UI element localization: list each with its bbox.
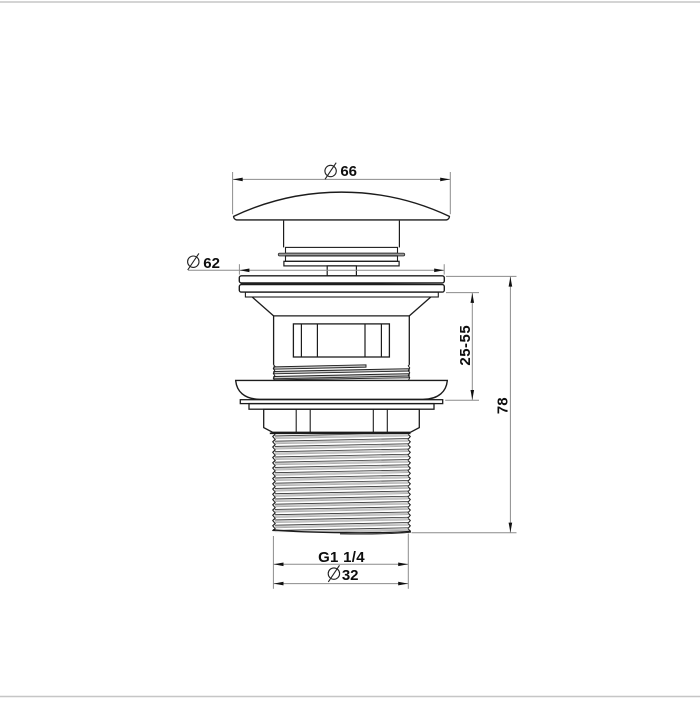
svg-text:25-55: 25-55 [457,325,474,366]
svg-text:66: 66 [340,163,357,180]
svg-text:G1 1/4: G1 1/4 [318,549,365,566]
svg-text:78: 78 [495,397,512,414]
svg-text:62: 62 [203,255,220,272]
svg-text:32: 32 [342,567,359,584]
